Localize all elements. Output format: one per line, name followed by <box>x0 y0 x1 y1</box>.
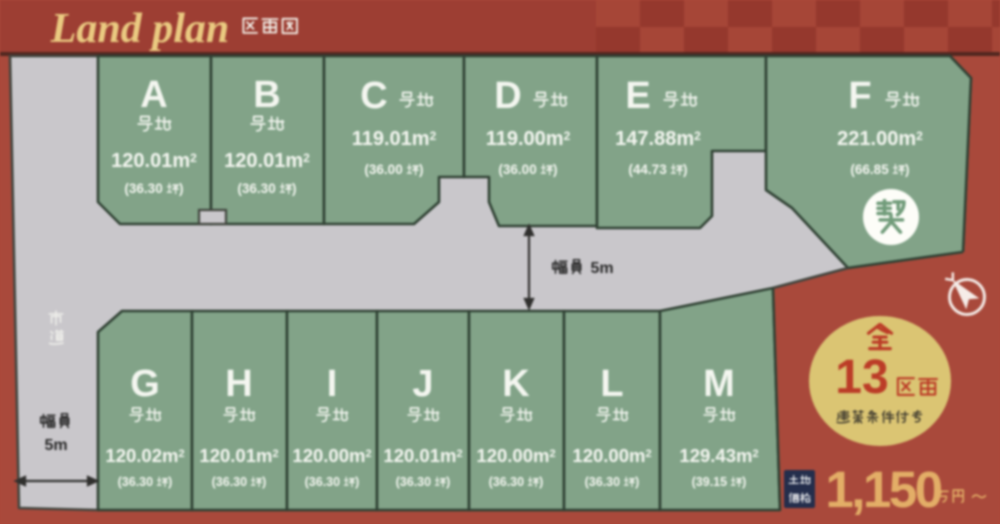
svg-text:H: H <box>225 363 252 405</box>
svg-text:B: B <box>253 74 280 116</box>
svg-text:F: F <box>848 75 871 117</box>
svg-text:): ) <box>539 475 543 489</box>
svg-text:120.00m2: 120.00m2 <box>292 445 371 466</box>
svg-text:120.02m2: 120.02m2 <box>105 445 184 466</box>
svg-text:(36.00: (36.00 <box>364 162 402 177</box>
svg-text:1,150: 1,150 <box>825 461 941 518</box>
svg-text:221.00m2: 221.00m2 <box>837 128 923 150</box>
svg-text:D: D <box>494 75 521 117</box>
svg-text:(44.73: (44.73 <box>628 162 667 177</box>
svg-text:(36.30: (36.30 <box>489 475 524 489</box>
svg-text:120.01m2: 120.01m2 <box>383 445 462 466</box>
svg-text:I: I <box>327 363 338 405</box>
svg-text:120.01m2: 120.01m2 <box>111 150 197 172</box>
svg-text:(66.85: (66.85 <box>850 162 889 177</box>
svg-text:(36.30: (36.30 <box>124 181 162 196</box>
svg-text:): ) <box>355 475 359 489</box>
svg-text:(39.15: (39.15 <box>692 475 727 489</box>
svg-text:(36.30: (36.30 <box>237 181 275 196</box>
svg-text:119.00m2: 119.00m2 <box>486 128 571 150</box>
svg-text:120.00m2: 120.00m2 <box>476 445 555 466</box>
svg-text:A: A <box>140 74 167 116</box>
svg-text:120.01m2: 120.01m2 <box>224 150 310 172</box>
svg-text:L: L <box>600 363 623 405</box>
svg-text:): ) <box>553 162 558 177</box>
svg-text:(36.30: (36.30 <box>396 475 431 489</box>
svg-text:): ) <box>683 162 688 177</box>
svg-text:119.01m2: 119.01m2 <box>352 128 437 150</box>
svg-text:129.43m2: 129.43m2 <box>679 445 758 466</box>
svg-text:(36.30: (36.30 <box>305 475 340 489</box>
svg-text:): ) <box>446 475 450 489</box>
svg-text:(36.30: (36.30 <box>212 475 247 489</box>
svg-text:): ) <box>742 475 746 489</box>
svg-text:Land plan: Land plan <box>50 6 230 52</box>
svg-text:E: E <box>625 75 650 117</box>
svg-text:): ) <box>635 475 639 489</box>
svg-text:): ) <box>179 181 184 196</box>
svg-text:(36.30: (36.30 <box>118 475 153 489</box>
svg-text:M: M <box>703 363 735 405</box>
svg-text:): ) <box>419 162 424 177</box>
svg-text:13: 13 <box>835 351 888 404</box>
svg-text:): ) <box>168 475 172 489</box>
svg-text:K: K <box>502 363 530 405</box>
svg-text:J: J <box>412 363 433 405</box>
svg-text:120.00m2: 120.00m2 <box>572 445 651 466</box>
svg-text:(36.30: (36.30 <box>585 475 620 489</box>
svg-text:147.88m2: 147.88m2 <box>615 128 701 150</box>
svg-text:(36.00: (36.00 <box>498 162 536 177</box>
svg-text:): ) <box>292 181 297 196</box>
svg-text:C: C <box>360 75 387 117</box>
svg-text:): ) <box>905 162 910 177</box>
svg-text:120.01m2: 120.01m2 <box>199 445 278 466</box>
svg-text:G: G <box>130 363 160 405</box>
svg-text:): ) <box>262 475 266 489</box>
svg-text:5m: 5m <box>44 437 67 454</box>
svg-text:5m: 5m <box>590 260 613 277</box>
